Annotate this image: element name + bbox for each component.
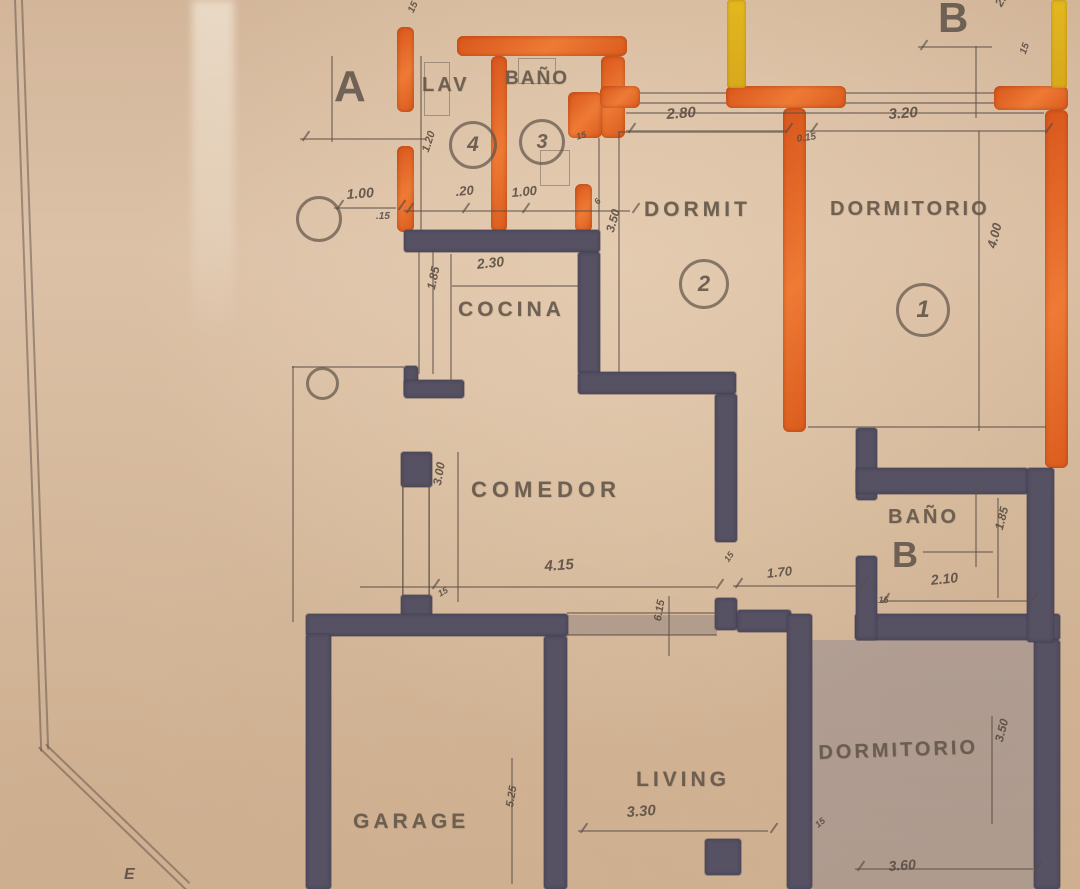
- wall-segment-dark: [578, 252, 600, 374]
- dimension-label: 6: [592, 196, 603, 206]
- pencil-line: [567, 612, 717, 614]
- pencil-line: [618, 132, 620, 374]
- room-label: GARAGE: [353, 810, 469, 834]
- wall-segment-dark: [1027, 468, 1054, 642]
- pencil-line: [511, 758, 513, 884]
- pencil-line: [618, 131, 784, 133]
- circle-symbol: [306, 367, 339, 400]
- pencil-line: [846, 102, 994, 104]
- room-label: LIVING: [636, 768, 730, 792]
- dimension-label: 15: [1018, 42, 1032, 56]
- dimension-label: .15: [376, 211, 390, 222]
- room-label: DORMIT: [644, 198, 751, 222]
- wall-segment-orange: [575, 184, 592, 232]
- dimension-label: 2.10: [930, 569, 959, 588]
- pencil-line: [404, 210, 630, 212]
- circled-number: 1: [896, 283, 950, 337]
- dimension-tick: [920, 40, 929, 51]
- pencil-line: [640, 102, 726, 104]
- wall-segment-dark: [404, 380, 464, 398]
- dimension-label: 1.85: [424, 265, 443, 291]
- pencil-line: [300, 138, 426, 140]
- room-label: COCINA: [458, 298, 565, 322]
- pencil-line: [733, 585, 859, 587]
- wall-segment-orange: [1045, 110, 1068, 468]
- pencil-line: [292, 366, 404, 368]
- dimension-label: 5.25: [504, 785, 520, 808]
- wall-segment-dark: [544, 636, 567, 889]
- pencil-line: [578, 830, 768, 832]
- wall-segment-yellow: [1051, 0, 1067, 88]
- pencil-line: [668, 596, 670, 656]
- dimension-label: .15: [876, 595, 889, 605]
- pencil-line: [923, 551, 993, 553]
- section-marker: B: [892, 534, 918, 576]
- section-marker: B: [938, 0, 968, 42]
- dimension-label: 15: [722, 550, 736, 564]
- wall-segment-dark: [705, 839, 741, 875]
- pencil-line: [598, 138, 600, 232]
- pencil-line: [806, 130, 1046, 132]
- dimension-label: 1.20: [420, 130, 438, 154]
- dimension-label: 2.80: [666, 104, 696, 123]
- dimension-label: E: [124, 866, 135, 884]
- wall-segment-orange: [600, 86, 640, 108]
- pencil-line: [846, 92, 994, 94]
- dimension-label: 3.30: [626, 802, 656, 821]
- dimension-label: 1.70: [766, 563, 793, 581]
- pencil-line: [567, 634, 717, 636]
- plan-canvas: ABBLAVBAÑODORMITDORMITORIOCOCINACOMEDORB…: [0, 0, 1080, 889]
- dimension-label: 4.15: [544, 556, 574, 575]
- room-wash: [567, 615, 717, 635]
- wall-segment-dark: [715, 394, 737, 542]
- pencil-line: [452, 285, 578, 287]
- dimension-label: 15: [406, 0, 421, 15]
- pencil-line: [21, 0, 49, 750]
- pencil-line: [450, 254, 452, 392]
- pencil-line: [808, 426, 1046, 428]
- circled-number: 2: [679, 259, 729, 309]
- pencil-line: [418, 252, 420, 374]
- pencil-line: [45, 744, 190, 884]
- dimension-label: 15: [575, 129, 587, 141]
- pencil-line: [975, 483, 977, 567]
- blueprint-page: ABBLAVBAÑODORMITDORMITORIOCOCINACOMEDORB…: [0, 0, 1080, 889]
- circle-symbol: [296, 196, 342, 242]
- dimension-label: 1.85: [992, 505, 1011, 531]
- wall-segment-dark: [404, 230, 600, 252]
- dimension-label: 1.00: [346, 184, 374, 202]
- wall-segment-dark: [306, 634, 331, 889]
- dimension-label: 3.00: [430, 461, 448, 486]
- wall-segment-dark: [401, 452, 432, 487]
- pencil-line: [292, 366, 294, 622]
- section-marker: A: [334, 62, 366, 112]
- pencil-line: [334, 207, 396, 209]
- wall-segment-orange: [397, 146, 414, 232]
- dimension-label: 2.30: [476, 253, 505, 272]
- wall-segment-dark: [578, 372, 736, 394]
- pencil-line: [975, 46, 977, 118]
- wall-segment-dark: [787, 614, 812, 889]
- wall-segment-orange: [726, 86, 846, 108]
- room-label: BAÑO: [505, 68, 569, 90]
- dimension-label: 3.60: [888, 856, 916, 874]
- wall-segment-yellow: [727, 0, 746, 88]
- wall-segment-dark: [856, 556, 877, 640]
- wall-segment-dark: [715, 598, 737, 630]
- pencil-line: [640, 92, 726, 94]
- dimension-label: 1.00: [511, 183, 538, 200]
- pencil-line: [880, 600, 1028, 602]
- wall-segment-orange: [457, 36, 627, 56]
- dimension-label: 3.20: [888, 104, 918, 123]
- pencil-line: [14, 0, 42, 752]
- wall-segment-orange: [783, 108, 806, 432]
- room-label: BAÑO: [888, 506, 959, 529]
- pencil-line: [978, 131, 980, 431]
- pencil-line: [331, 56, 333, 142]
- wall-segment-dark: [306, 614, 568, 636]
- wall-segment-orange: [397, 27, 414, 112]
- dimension-label: .20: [455, 182, 474, 199]
- wall-segment-dark: [737, 610, 791, 632]
- wall-segment-dark: [856, 468, 1028, 494]
- pencil-line: [918, 46, 992, 48]
- pencil-line: [855, 868, 1033, 870]
- circled-number: 4: [449, 121, 497, 169]
- fixture-outline: [402, 484, 430, 596]
- wall-segment-orange: [994, 86, 1068, 110]
- room-label: COMEDOR: [471, 477, 621, 503]
- dimension-tick: [770, 823, 779, 834]
- pencil-line: [457, 452, 459, 602]
- room-label: LAV: [422, 74, 470, 97]
- dimension-label: 0.15: [796, 131, 817, 145]
- circled-number: 3: [519, 119, 565, 165]
- dimension-label: 4.00: [984, 221, 1005, 249]
- dimension-tick: [632, 203, 641, 214]
- wall-segment-dark: [1034, 640, 1060, 889]
- room-label: DORMITORIO: [830, 198, 990, 221]
- pencil-line: [38, 747, 187, 889]
- pencil-line: [991, 716, 993, 824]
- dimension-tick: [716, 579, 725, 590]
- dimension-label: 2.: [992, 0, 1009, 9]
- room-wash: [812, 640, 1034, 889]
